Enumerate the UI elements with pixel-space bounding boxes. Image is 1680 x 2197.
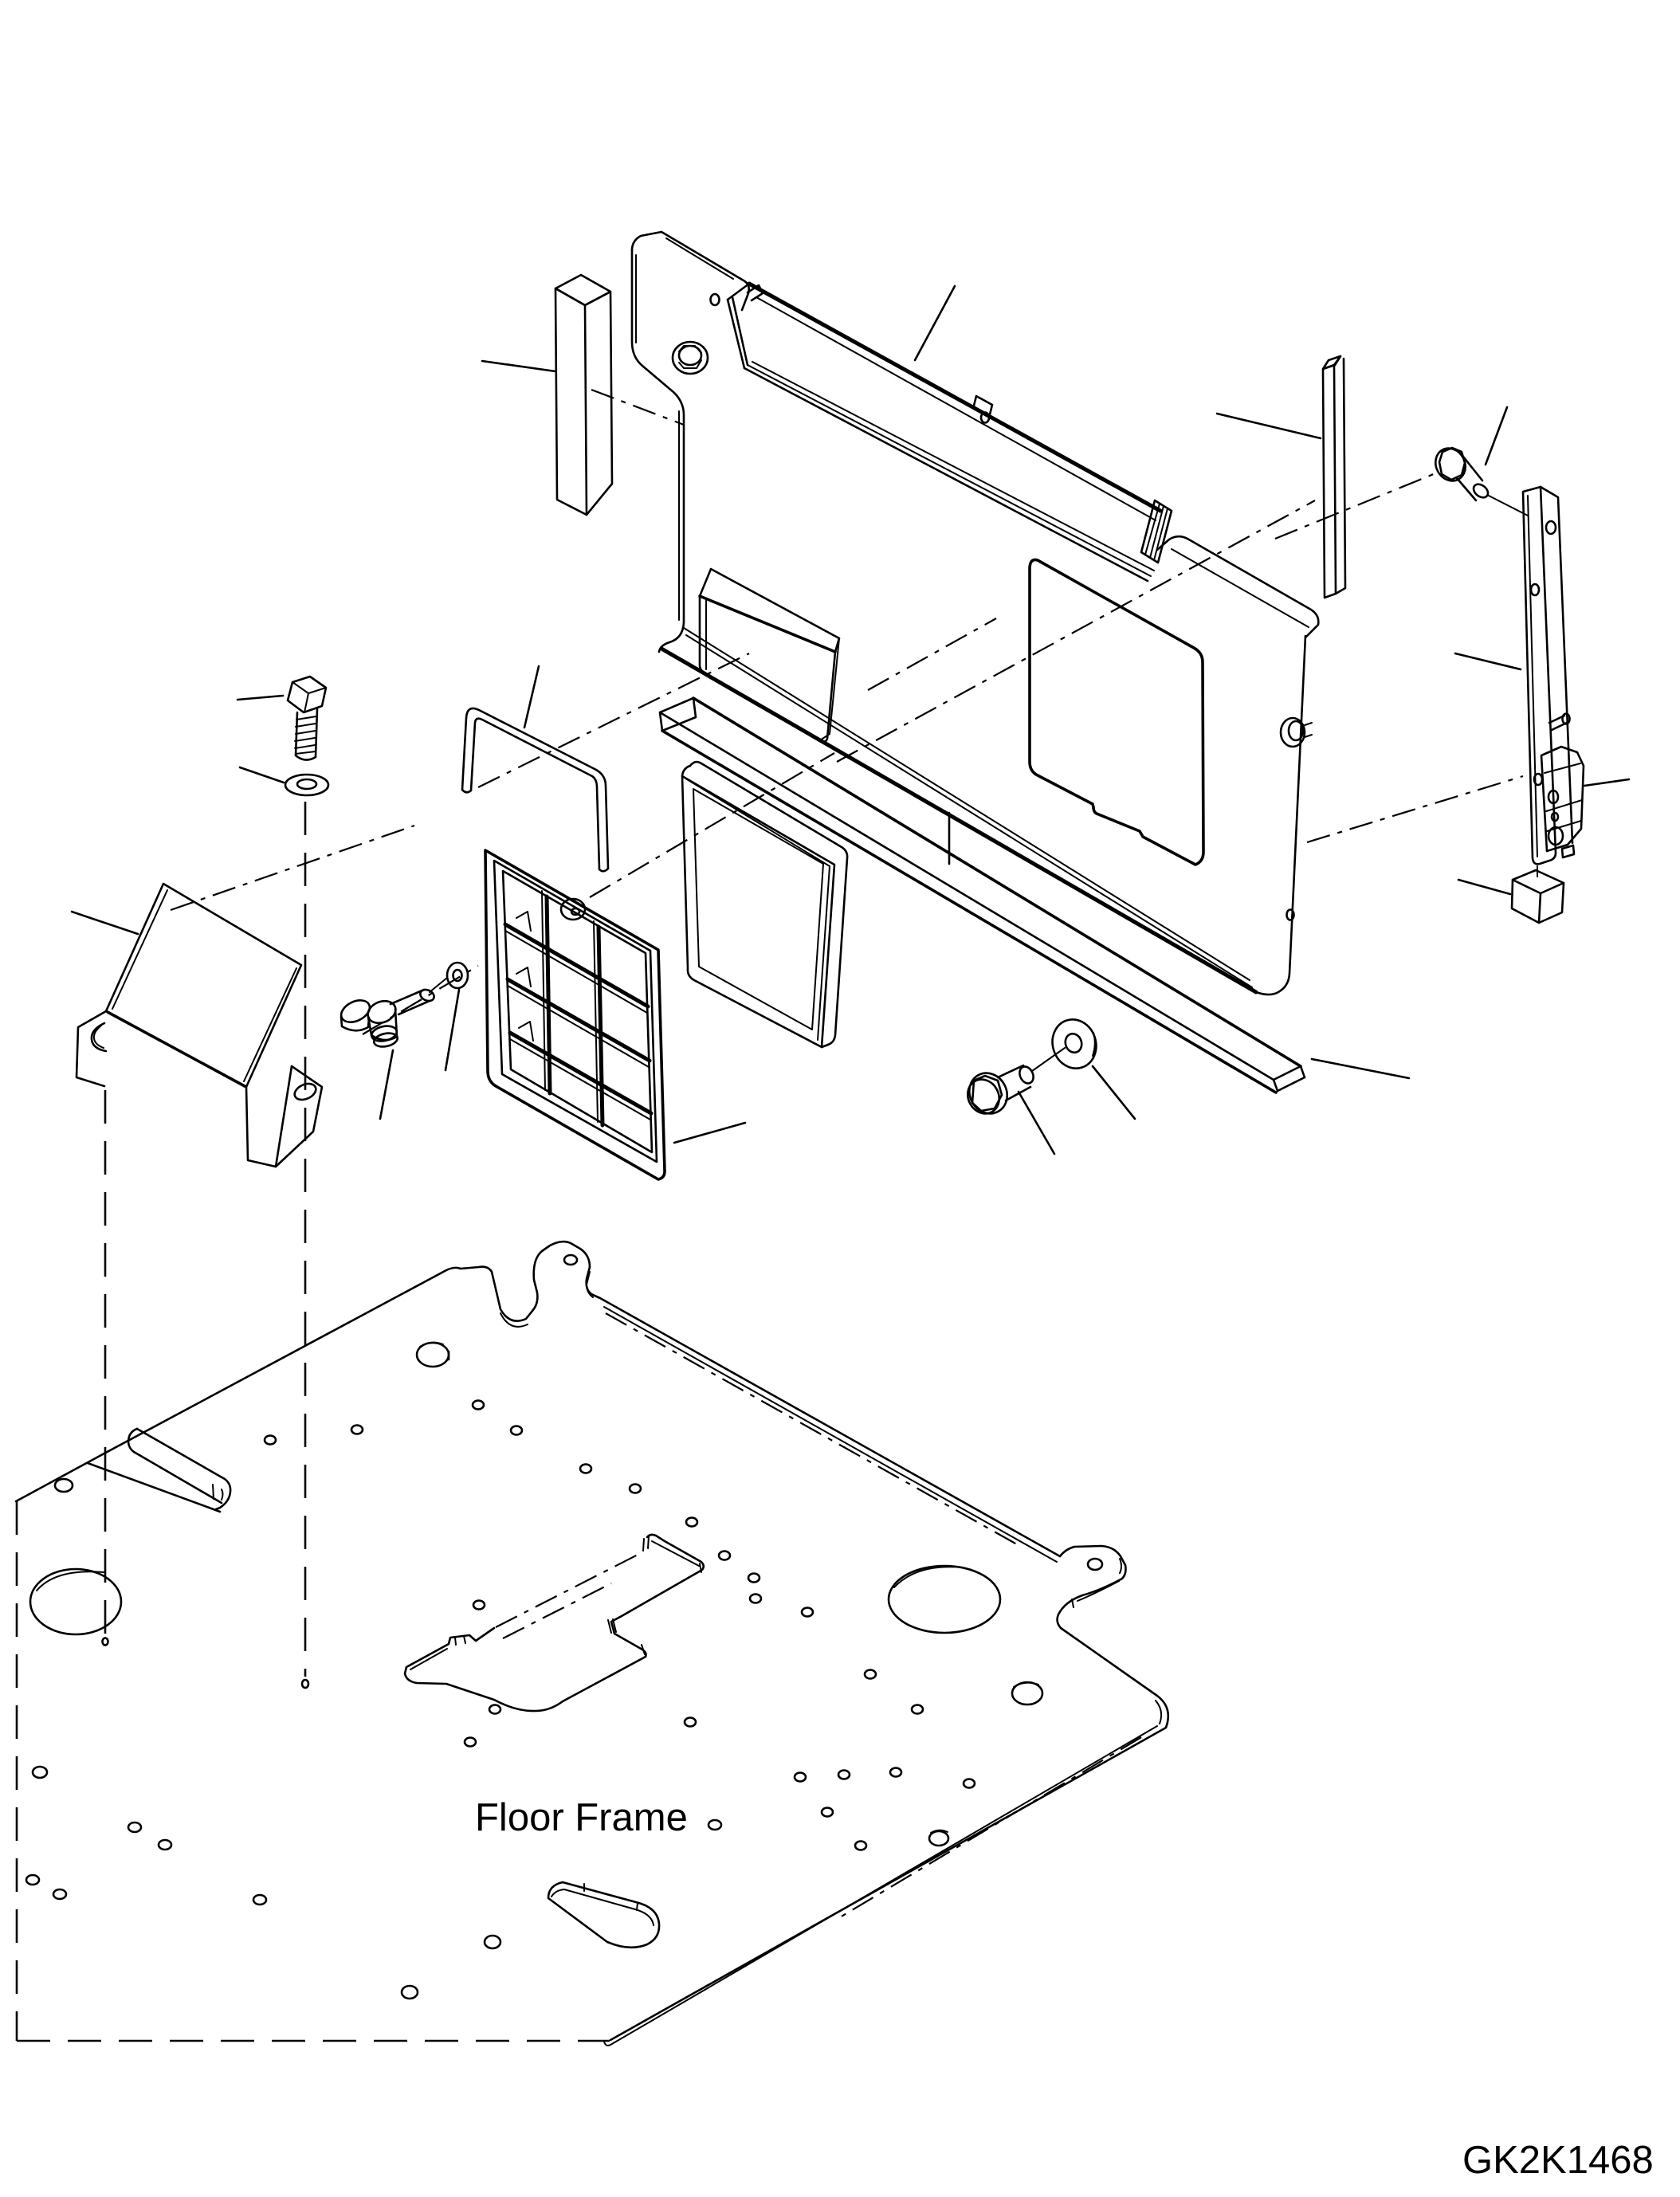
svg-text:Floor Frame: Floor Frame	[475, 1796, 688, 1839]
svg-text:GK2K1468: GK2K1468	[1462, 2139, 1654, 2182]
